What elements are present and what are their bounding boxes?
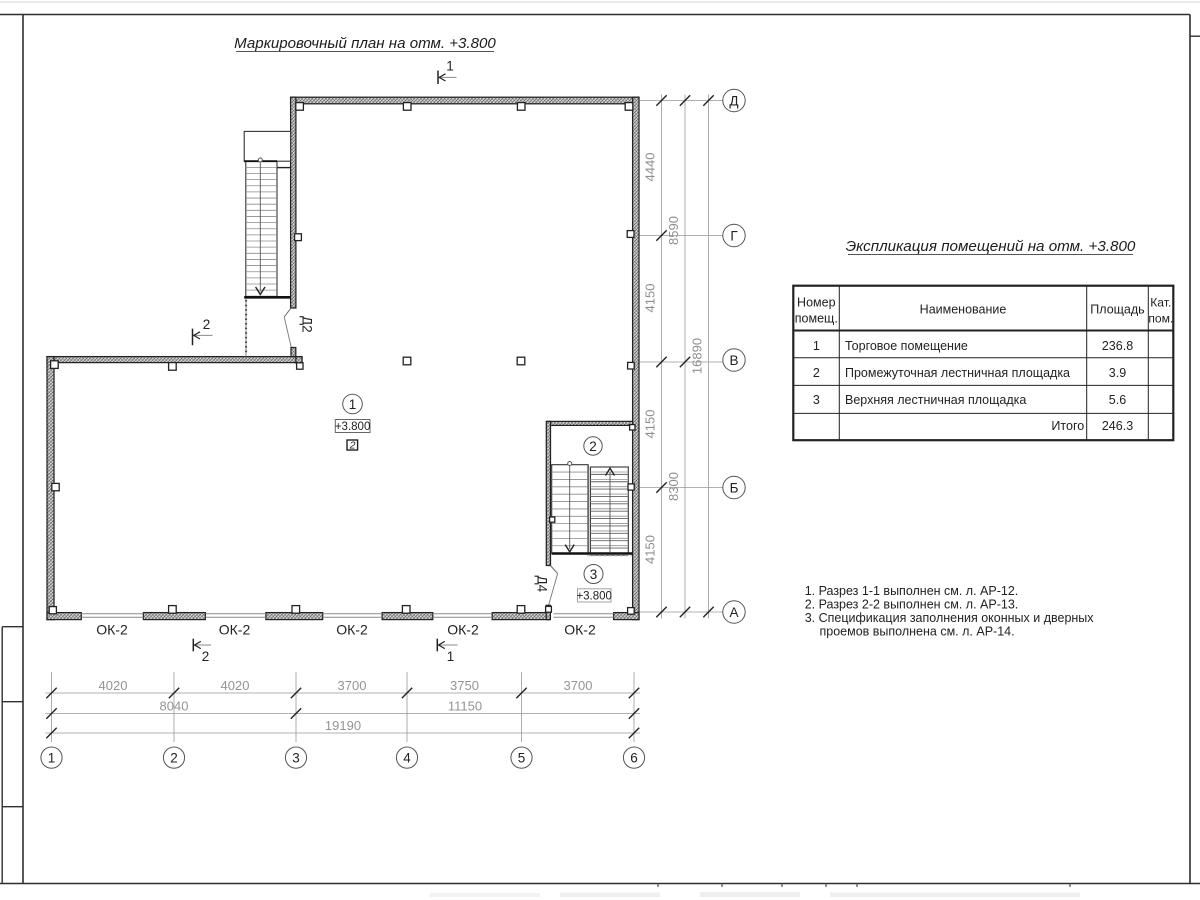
svg-text:5.6: 5.6 bbox=[1109, 393, 1126, 407]
svg-text:Номер: Номер bbox=[797, 296, 836, 310]
svg-text:ОК-2: ОК-2 bbox=[96, 622, 128, 638]
svg-text:ОК-2: ОК-2 bbox=[336, 622, 368, 638]
svg-text:4440: 4440 bbox=[643, 153, 658, 182]
svg-text:ОК-2: ОК-2 bbox=[219, 622, 251, 638]
svg-text:Верхняя лестничная площадка: Верхняя лестничная площадка bbox=[845, 393, 1026, 407]
svg-text:Б: Б bbox=[730, 480, 739, 495]
svg-text:Д: Д bbox=[729, 93, 738, 108]
svg-text:Маркировочный план на отм. +3.: Маркировочный план на отм. +3.800 bbox=[234, 35, 496, 52]
svg-text:3: 3 bbox=[292, 750, 300, 765]
svg-text:16890: 16890 bbox=[690, 338, 705, 374]
svg-text:Площадь: Площадь bbox=[1090, 303, 1144, 317]
svg-text:Экспликация помещений на отм.: Экспликация помещений на отм. +3.800 bbox=[846, 238, 1136, 255]
svg-text:3. Спецификация заполнения око: 3. Спецификация заполнения оконных и две… bbox=[805, 611, 1095, 625]
svg-text:4150: 4150 bbox=[643, 410, 658, 439]
svg-text:4020: 4020 bbox=[221, 678, 250, 693]
svg-text:4: 4 bbox=[403, 750, 411, 765]
svg-text:3750: 3750 bbox=[450, 678, 479, 693]
svg-text:Промежуточная лестничная площа: Промежуточная лестничная площадка bbox=[845, 366, 1070, 380]
svg-text:+3.800: +3.800 bbox=[576, 590, 612, 602]
svg-text:Д4: Д4 bbox=[535, 576, 550, 593]
svg-text:19190: 19190 bbox=[325, 718, 361, 733]
svg-text:8590: 8590 bbox=[666, 216, 681, 245]
svg-text:246.3: 246.3 bbox=[1102, 419, 1133, 433]
svg-text:4150: 4150 bbox=[643, 284, 658, 313]
svg-text:3.9: 3.9 bbox=[1109, 366, 1126, 380]
svg-text:4150: 4150 bbox=[643, 535, 658, 564]
svg-text:В: В bbox=[729, 353, 738, 368]
svg-text:2: 2 bbox=[349, 440, 356, 452]
svg-text:ОК-2: ОК-2 bbox=[447, 622, 479, 638]
svg-text:5: 5 bbox=[518, 750, 526, 765]
svg-text:А: А bbox=[729, 605, 738, 620]
svg-text:Наименование: Наименование bbox=[920, 303, 1007, 317]
svg-text:1: 1 bbox=[48, 750, 56, 765]
svg-text:4020: 4020 bbox=[99, 678, 128, 693]
svg-text:1. Разрез 1-1 выполнен см. л.: 1. Разрез 1-1 выполнен см. л. АР-12. bbox=[805, 584, 1019, 598]
svg-text:1: 1 bbox=[447, 649, 455, 664]
svg-text:3700: 3700 bbox=[564, 678, 593, 693]
svg-text:Торговое помещение: Торговое помещение bbox=[845, 339, 968, 353]
svg-text:236.8: 236.8 bbox=[1102, 339, 1133, 353]
svg-text:1: 1 bbox=[446, 59, 454, 74]
svg-text:+3.800: +3.800 bbox=[335, 421, 371, 433]
svg-text:1: 1 bbox=[813, 339, 820, 353]
svg-text:ОК-2: ОК-2 bbox=[564, 622, 596, 638]
svg-text:8300: 8300 bbox=[666, 472, 681, 501]
svg-text:Д2: Д2 bbox=[300, 316, 315, 333]
svg-text:2: 2 bbox=[170, 750, 178, 765]
svg-text:2: 2 bbox=[589, 439, 597, 454]
svg-text:11150: 11150 bbox=[448, 699, 482, 714]
svg-text:пом.: пом. bbox=[1148, 312, 1173, 326]
svg-text:2: 2 bbox=[813, 366, 820, 380]
svg-text:1: 1 bbox=[349, 397, 357, 412]
svg-text:6: 6 bbox=[630, 750, 638, 765]
svg-text:2: 2 bbox=[203, 317, 211, 332]
svg-text:2. Разрез 2-2 выполнен см. л.: 2. Разрез 2-2 выполнен см. л. АР-13. bbox=[805, 597, 1019, 611]
svg-text:Кат.: Кат. bbox=[1150, 296, 1171, 310]
svg-text:проемов выполнена см. л. АР-14: проемов выполнена см. л. АР-14. bbox=[820, 625, 1015, 639]
svg-text:2: 2 bbox=[202, 649, 210, 664]
svg-text:Итого: Итого bbox=[1051, 419, 1084, 433]
svg-text:8040: 8040 bbox=[160, 699, 189, 714]
svg-text:3700: 3700 bbox=[338, 678, 367, 693]
svg-text:3: 3 bbox=[813, 393, 820, 407]
svg-text:Г: Г bbox=[730, 228, 738, 243]
svg-text:помещ.: помещ. bbox=[795, 312, 838, 326]
svg-text:3: 3 bbox=[590, 567, 598, 582]
